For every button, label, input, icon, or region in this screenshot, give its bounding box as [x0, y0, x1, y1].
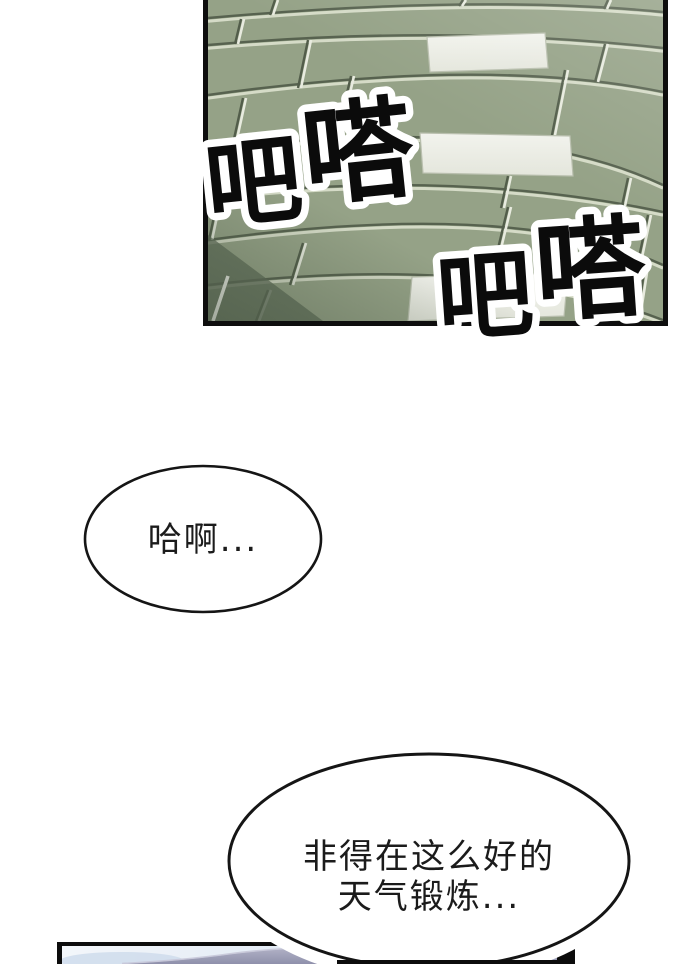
sfx2-char-1: 吧 — [433, 237, 537, 355]
comic-page: 吧嗒 吧嗒 哈啊... — [0, 0, 700, 964]
sfx1-char-2: 嗒 — [297, 83, 421, 222]
sfx2-char-2: 嗒 — [531, 202, 651, 337]
bubble-line-2: 天气锻炼... — [229, 877, 629, 917]
next-panel-border-fragment — [337, 960, 575, 964]
footstep-sfx-2: 吧嗒 — [422, 185, 700, 380]
svg-text:吧嗒: 吧嗒 — [197, 83, 421, 243]
sfx1-char-1: 吧 — [200, 122, 307, 243]
speech-bubble-large-text: 非得在这么好的 天气锻炼... — [229, 837, 629, 917]
svg-text:吧嗒: 吧嗒 — [431, 202, 651, 355]
speech-bubble-small-text: 哈啊... — [82, 520, 324, 560]
bubble-line-1: 非得在这么好的 — [229, 837, 629, 877]
